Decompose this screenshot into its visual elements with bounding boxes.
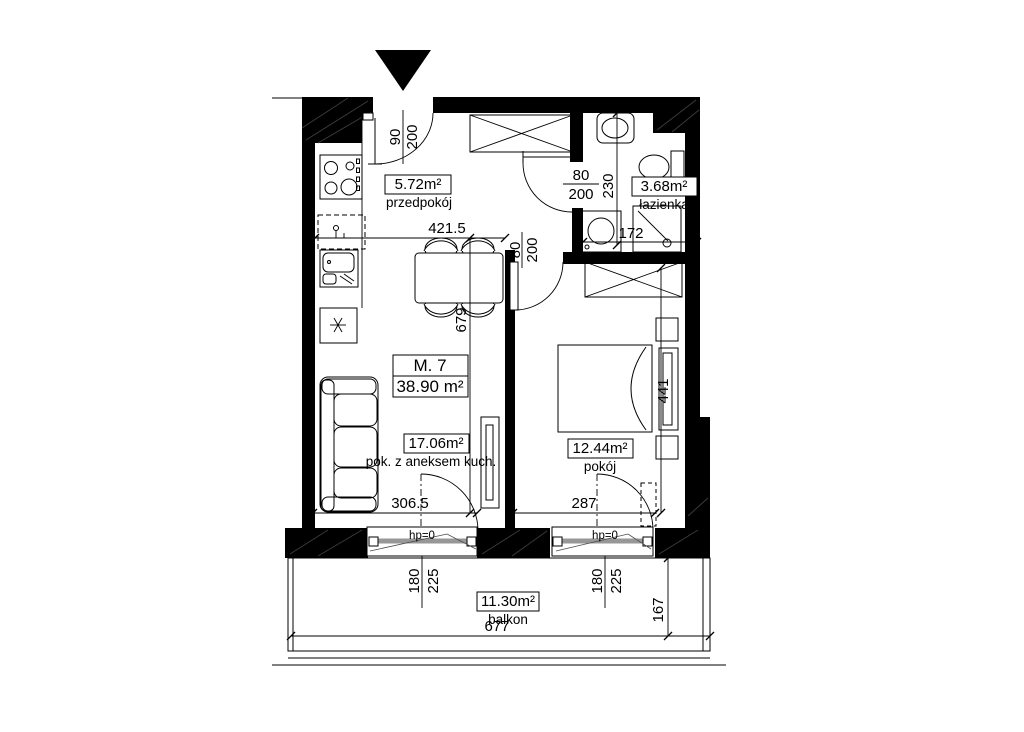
bedroom-door-width: 80 (507, 242, 524, 259)
dim-balcony-depth: 167 (650, 597, 667, 622)
living-area: 17.06m² (408, 435, 463, 452)
dim-bedroom-length: 441 (655, 378, 672, 403)
living-name: pok. z aneksem kuch. (366, 454, 497, 469)
entrance-door-height: 200 (404, 124, 421, 149)
unit-title: M. 7 38.90 m² (393, 355, 468, 397)
hall-wardrobe-icon (470, 115, 573, 152)
bedroom-door (510, 262, 563, 310)
washing-machine-icon (582, 211, 621, 252)
fridge-icon (320, 308, 357, 343)
washbasin-icon (597, 113, 634, 143)
window1-sill: hp=0 (409, 530, 435, 542)
window2-sill: hp=0 (592, 530, 618, 542)
balcony-door-living (367, 474, 478, 556)
unit-total-area: 38.90 m² (396, 377, 463, 396)
window1-width: 180 (406, 568, 423, 593)
balcony-name: balkon (488, 612, 528, 627)
kitchen-sink-icon (320, 250, 358, 287)
floor-plan-drawing: 421.5 679 230 172 441 287 306.5 677 167 … (0, 0, 1024, 732)
bathroom-name: łazienka (639, 197, 689, 212)
window1-height: 225 (425, 568, 442, 593)
unit-code: M. 7 (413, 356, 446, 375)
dishwasher-icon (318, 215, 365, 249)
bedroom-area: 12.44m² (572, 440, 627, 457)
dim-living-balcony-wall: 306.5 (391, 495, 429, 512)
stove-icon (320, 155, 362, 199)
bedroom-wardrobe-icon (585, 262, 682, 297)
entrance-door-width: 90 (387, 129, 404, 146)
bedroom-radiator (641, 483, 656, 526)
bathroom-door-height: 200 (568, 186, 593, 203)
dim-living-length: 679 (453, 307, 470, 332)
balcony-area: 11.30m² (481, 593, 535, 610)
balcony-door-bedroom (552, 474, 653, 556)
dining-table (415, 253, 503, 303)
dim-bedroom-width: 287 (571, 495, 596, 512)
floor-plan: 421.5 679 230 172 441 287 306.5 677 167 … (0, 0, 1024, 732)
nightstand-bottom (656, 436, 678, 459)
bedroom-door-height: 200 (524, 237, 541, 262)
bathroom-door-width: 80 (573, 167, 590, 184)
nightstand-top (656, 318, 678, 341)
hall-area: 5.72m² (395, 176, 442, 193)
window2-height: 225 (608, 568, 625, 593)
hall-name: przedpokój (386, 195, 452, 210)
dim-bathroom-width: 172 (618, 225, 643, 242)
bathroom-door (523, 151, 572, 212)
entrance-arrow-icon (375, 50, 431, 91)
bedroom-name: pokój (584, 459, 616, 474)
bathroom-area: 3.68m² (641, 178, 688, 195)
dim-living-width: 421.5 (428, 220, 466, 237)
bed (558, 345, 652, 432)
window2-width: 180 (589, 568, 606, 593)
dim-bathroom-length: 230 (600, 173, 617, 198)
sofa (320, 377, 378, 512)
